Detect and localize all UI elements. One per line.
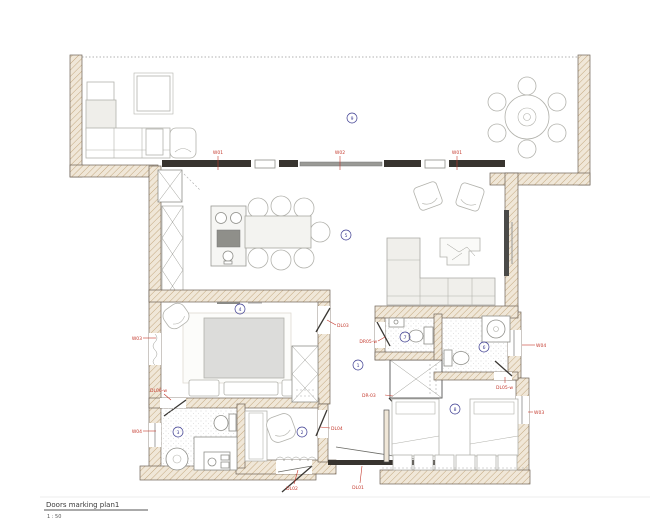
master-bedroom: 4 (149, 300, 330, 416)
marker-dl06w: DL06-w (150, 388, 167, 394)
floor-plan-drawing: 9 W01 W02 W01 (0, 0, 659, 532)
room-label-second-bedroom: 8 (450, 404, 460, 414)
title-block: Doors marking plan1 1 : 50 (40, 497, 650, 520)
terrace-left-wall (70, 55, 82, 177)
marker-w04-right: W04 (536, 343, 546, 349)
bed-left (392, 399, 439, 456)
room-number-master-bedroom: 4 (239, 307, 242, 313)
kitchen-island (211, 206, 246, 266)
terrace-bottom-left-wall (70, 165, 158, 177)
dining-table (245, 216, 311, 248)
toilet-bowl (409, 330, 423, 342)
plan-title: Doors marking plan1 (46, 501, 119, 509)
room-label-entry: 2 (297, 427, 307, 437)
dining-set (245, 196, 330, 270)
second-bedroom: 8 (382, 399, 528, 470)
bedroom-top-wall (149, 290, 330, 302)
coffee-table (440, 238, 480, 265)
marker-w03-left: W03 (132, 336, 142, 342)
entry-bench (245, 411, 267, 461)
wc-toilet-bowl (453, 352, 469, 365)
living-armchair-2 (455, 182, 485, 212)
entry-armchair (264, 411, 297, 444)
bed-master (204, 318, 284, 378)
outdoor-lounge-set (86, 73, 196, 158)
terrace-right-wall (578, 55, 590, 185)
marker-w02-top-center: W02 (335, 150, 345, 156)
tv (504, 210, 509, 276)
room-number-entry: 2 (301, 430, 304, 436)
room-number-main-bathroom: 3 (177, 430, 180, 436)
wc-sink (487, 320, 505, 338)
house-top-wall: W01 W02 W01 (162, 150, 505, 170)
pillow (224, 382, 278, 395)
pillow (189, 380, 219, 396)
oven (217, 230, 240, 247)
room-label-living: 5 (341, 230, 351, 240)
plan-scale: 1 : 50 (47, 514, 61, 520)
marker-dl02: DL02 (286, 486, 298, 492)
shower-washer (194, 437, 237, 470)
room-number-corridor: 1 (357, 363, 360, 369)
marker-dr05w: DR05-w (359, 339, 377, 345)
wardrobe-master (292, 346, 318, 402)
marker-w01-top-left: W01 (213, 150, 223, 156)
wc-toilet-tank (444, 350, 452, 366)
small-bathroom: 7 (375, 314, 442, 360)
wc-room: 6 (434, 316, 518, 380)
bed-right (470, 399, 518, 456)
room-label-corridor: 1 (353, 360, 363, 370)
room-number-second-bedroom: 8 (454, 407, 457, 413)
room-number-wc: 6 (483, 345, 486, 351)
marker-dl04: DL04 (331, 426, 343, 432)
marker-w04-left: W04 (132, 429, 142, 435)
marker-dr03: DR-03 (362, 393, 376, 399)
toilet-bowl-3 (214, 416, 228, 431)
room-number-small-bathroom: 7 (404, 335, 407, 341)
marker-dl05w: DL05-w (496, 385, 513, 391)
bottom-wall-bedroom2 (380, 470, 530, 484)
floor-plan-canvas: 9 W01 W02 W01 (0, 0, 659, 532)
kitchen-cabinets (162, 206, 183, 302)
room-number-terrace: 9 (351, 116, 354, 122)
marker-w01-top-right: W01 (452, 150, 462, 156)
outdoor-round-table (488, 77, 566, 158)
toilet-tank (424, 327, 433, 344)
living-armchair-1 (413, 181, 444, 212)
island-sink (223, 251, 233, 261)
bathroom-sink (166, 448, 188, 470)
marker-dl03: DL03 (337, 323, 349, 329)
marker-dl01: DL01 (352, 485, 364, 491)
marker-w03-right: W03 (534, 410, 544, 416)
main-bathroom: 3 (161, 404, 245, 470)
living-dining-room: 5 (158, 170, 512, 305)
room-label-master-bedroom: 4 (235, 304, 245, 314)
room-label-terrace: 9 (347, 113, 357, 123)
toilet-tank-3 (229, 414, 236, 431)
room-number-living: 5 (345, 233, 348, 239)
